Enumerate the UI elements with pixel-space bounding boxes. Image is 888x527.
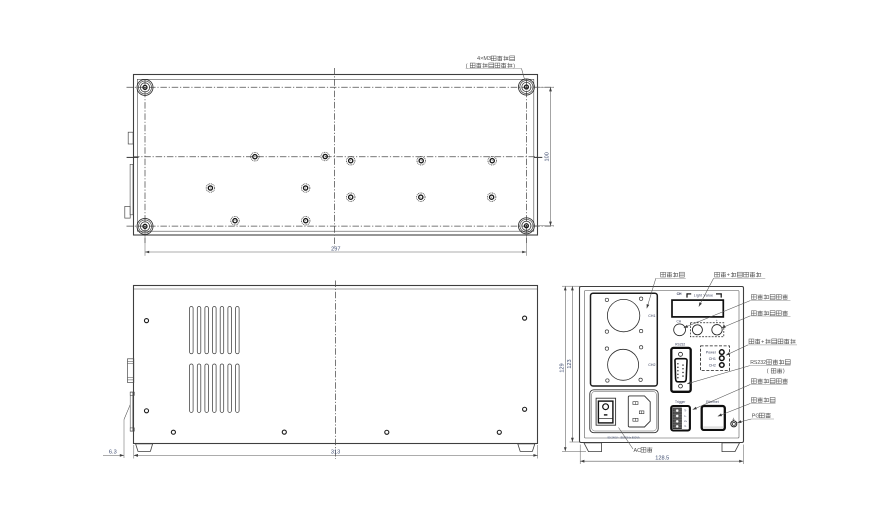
svg-text:Tr: Tr <box>684 409 686 412</box>
svg-text:RS232: RS232 <box>675 343 685 347</box>
svg-text:CH2: CH2 <box>709 363 716 367</box>
svg-text:PG: PG <box>752 413 760 419</box>
svg-text:3-: 3- <box>684 425 686 428</box>
svg-text:Power: Power <box>706 351 717 355</box>
svg-text:123: 123 <box>567 359 573 368</box>
svg-text:CH: CH <box>677 319 682 323</box>
svg-text:6.3: 6.3 <box>109 449 117 455</box>
svg-text:+: + <box>761 339 764 345</box>
svg-text:CH2: CH2 <box>648 363 655 367</box>
svg-text:313: 313 <box>331 450 340 456</box>
svg-text:): ) <box>783 369 785 375</box>
svg-text:(: ( <box>767 369 769 375</box>
svg-text:+: + <box>727 273 730 279</box>
svg-text:Trigger: Trigger <box>675 400 686 404</box>
svg-text:RS232: RS232 <box>750 360 766 366</box>
svg-text:CH1: CH1 <box>709 357 716 361</box>
svg-text:128.5: 128.5 <box>655 456 669 462</box>
svg-text:100: 100 <box>544 152 550 161</box>
svg-text:AC: AC <box>634 448 642 454</box>
svg-text:297: 297 <box>331 246 340 252</box>
svg-text:CH: CH <box>677 292 682 296</box>
svg-text:CH1: CH1 <box>648 314 655 318</box>
svg-text:4×M3: 4×M3 <box>477 56 491 62</box>
svg-text:Light Value: Light Value <box>694 293 713 297</box>
svg-text:+: + <box>716 319 718 323</box>
svg-text:1-: 1- <box>684 415 686 418</box>
svg-text:129: 129 <box>559 363 565 372</box>
svg-text:90-240V~ /50/60Hz 800VA: 90-240V~ /50/60Hz 800VA <box>607 435 639 439</box>
